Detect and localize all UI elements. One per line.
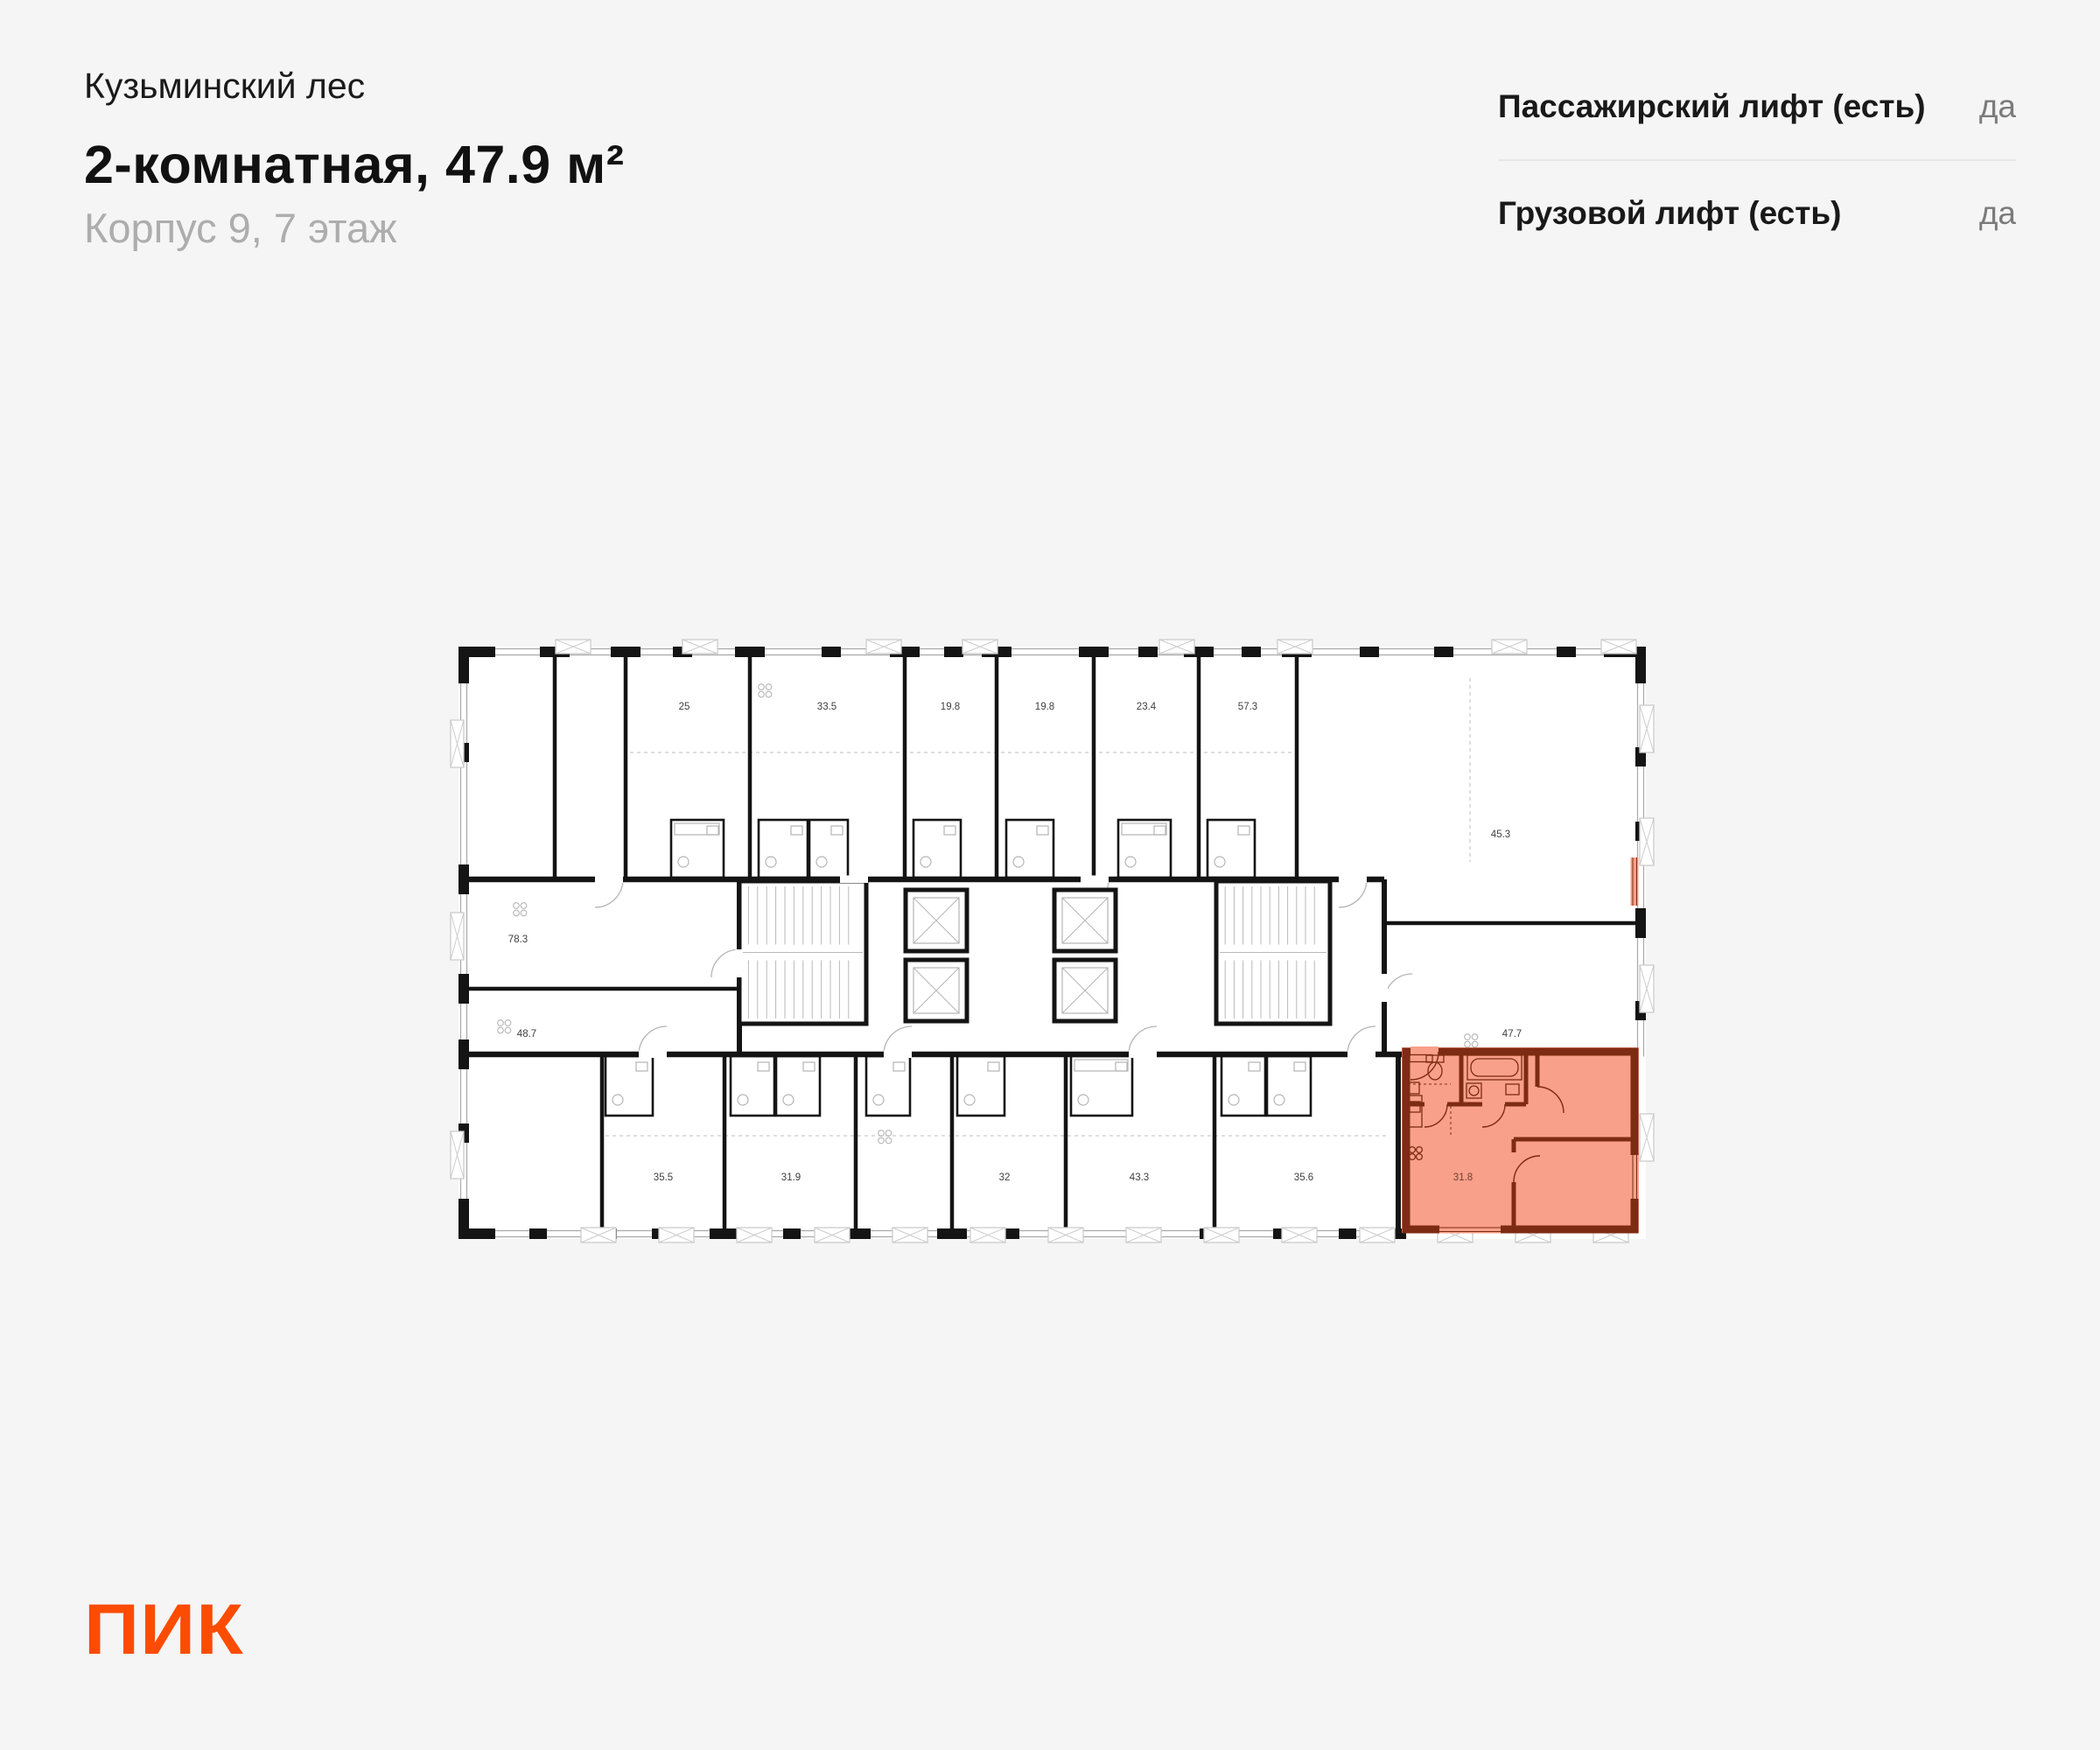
room-area-label: 43.3 [1130,1172,1149,1183]
room-area-label: 19.8 [941,702,960,712]
passenger-lift-label: Пассажирский лифт (есть) [1498,88,1926,125]
room-area-label: 57.3 [1238,702,1257,712]
room-area-label: 47.7 [1502,1029,1522,1039]
info-row-cargo-lift: Грузовой лифт (есть) да [1498,159,2016,266]
room-area-label: 33.5 [817,702,836,712]
pik-logo[interactable]: ПИК [84,1594,244,1666]
room-area-label: 45.3 [1491,829,1510,840]
room-area-label: 48.7 [517,1029,536,1039]
page-header: Кузьминский лес 2-комнатная, 47.9 м² Кор… [84,65,625,254]
room-area-label: 31.9 [781,1172,801,1183]
floor-plan: 31.8 2533.519.819.823.457.345.347.778.34… [436,606,1678,1284]
project-name: Кузьминский лес [84,65,625,108]
room-area-label: 35.5 [654,1172,673,1183]
cargo-lift-label: Грузовой лифт (есть) [1498,195,1841,232]
info-row-passenger-lift: Пассажирский лифт (есть) да [1498,54,2016,159]
cargo-lift-value: да [1979,195,2016,232]
room-area-label: 35.6 [1294,1172,1313,1183]
room-area-label: 78.3 [508,934,528,945]
room-area-label: 25 [679,702,690,712]
room-area-label: 23.4 [1137,702,1157,712]
elevator-info: Пассажирский лифт (есть) да Грузовой лиф… [1498,54,2016,266]
floor-plan-container: 31.8 2533.519.819.823.457.345.347.778.34… [436,606,1678,1284]
room-area-label: 32 [999,1172,1011,1183]
building-floor-subtitle: Корпус 9, 7 этаж [84,204,625,253]
passenger-lift-value: да [1979,88,2016,125]
page-title: 2-комнатная, 47.9 м² [84,134,625,195]
highlighted-apartment-area-label: 31.8 [1453,1172,1473,1183]
room-area-label: 19.8 [1035,702,1054,712]
